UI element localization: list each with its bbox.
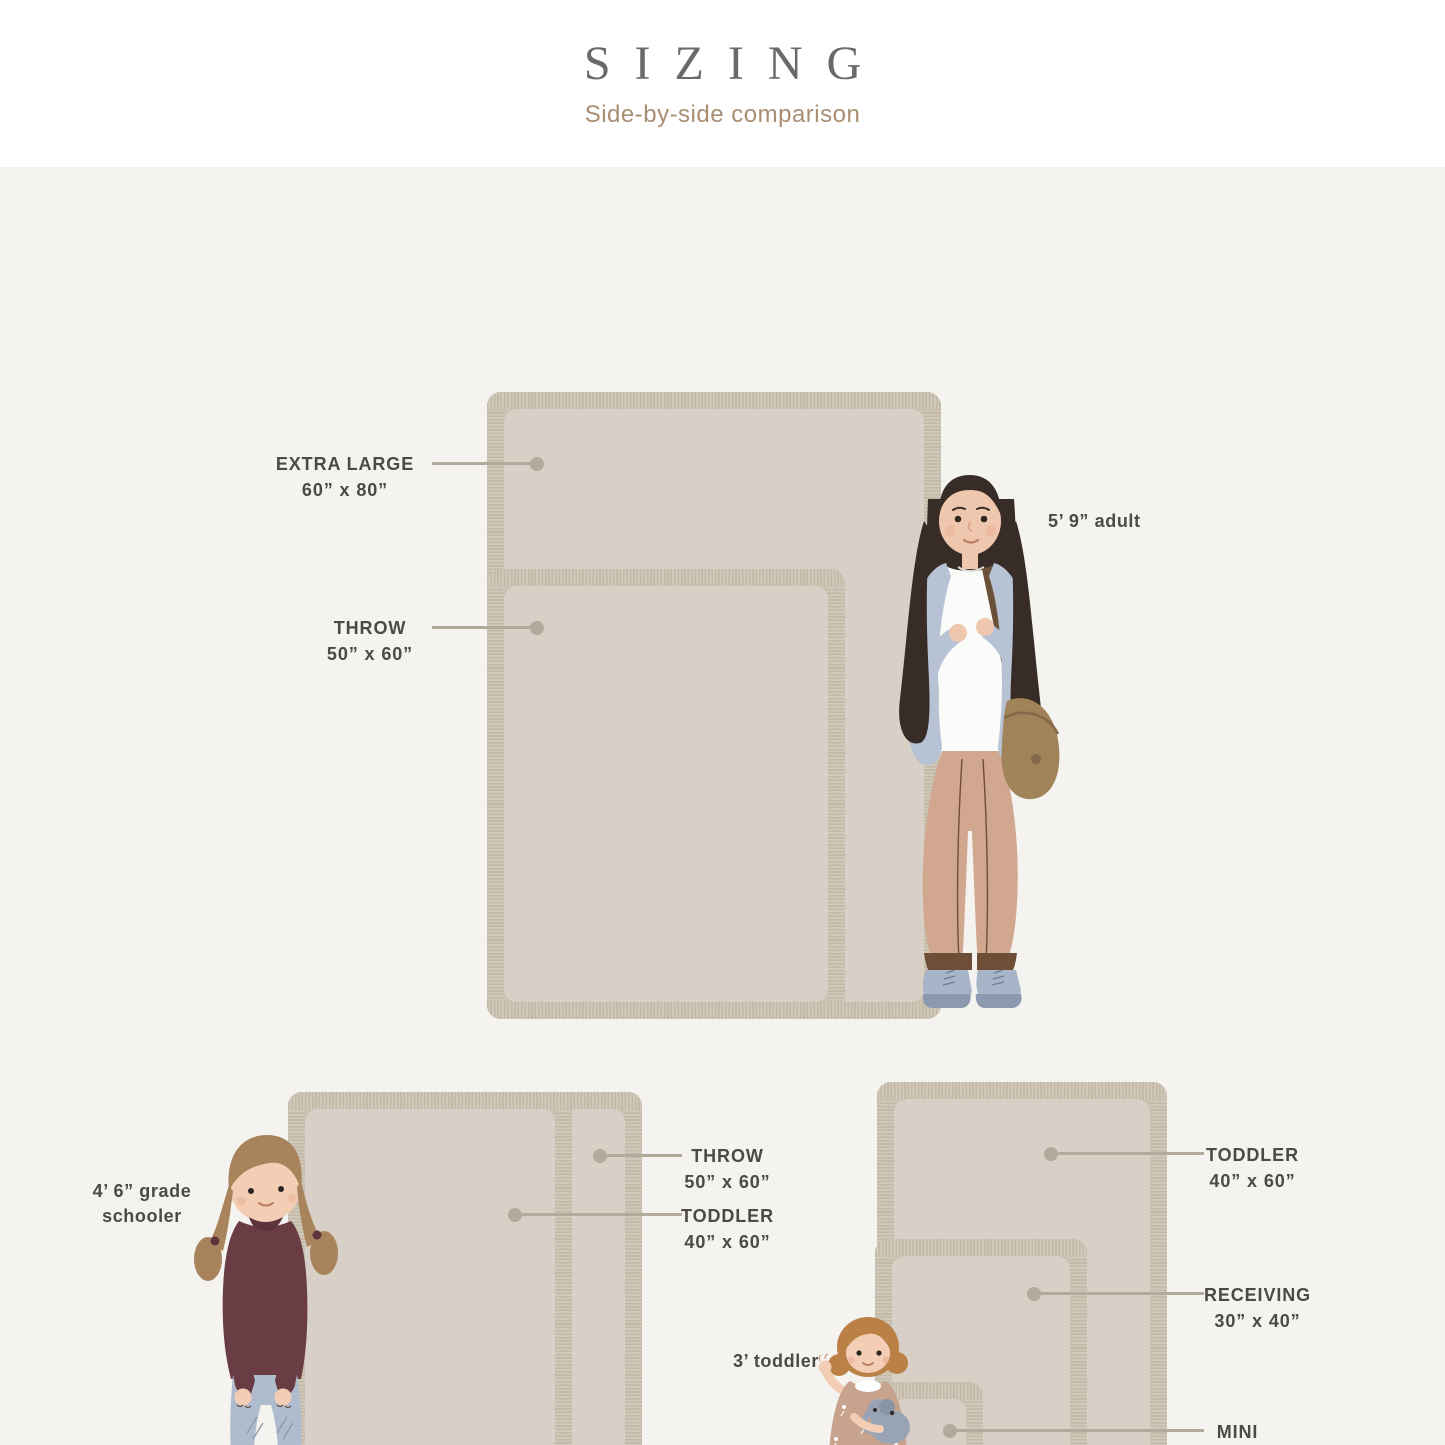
- page-subtitle: Side-by-side comparison: [0, 101, 1445, 129]
- blanket-fringe: [554, 1092, 572, 1445]
- blanket-fringe: [487, 569, 505, 1019]
- leader-extra-large: [432, 462, 537, 465]
- diagram-area: EXTRA LARGE 60” x 80” THROW 50” x 60” 5’…: [0, 167, 1445, 1445]
- sizing-comparison-chart: SIZING Side-by-side comparison: [0, 0, 1445, 1445]
- leader-dot: [593, 1149, 607, 1163]
- label-mini: MINI 15” x 20”: [1150, 1419, 1325, 1445]
- blanket-throw-top: [487, 569, 845, 1019]
- grade-schooler-illustration: [193, 1127, 338, 1445]
- label-receiving: RECEIVING 30” x 40”: [1170, 1282, 1345, 1334]
- blanket-fringe: [487, 569, 845, 587]
- label-toddler-right: TODDLER 40” x 60”: [1165, 1142, 1340, 1194]
- blanket-name: THROW: [270, 615, 470, 641]
- leader-dot: [508, 1208, 522, 1222]
- toddler-illustration: [806, 1307, 921, 1445]
- blanket-fringe: [877, 1082, 1167, 1100]
- label-extra-large: EXTRA LARGE 60” x 80”: [245, 451, 445, 503]
- blanket-fringe: [827, 569, 845, 1019]
- leader-dot: [530, 621, 544, 635]
- blanket-name: TODDLER: [1165, 1142, 1340, 1168]
- blanket-fringe: [288, 1092, 572, 1110]
- blanket-size: 60” x 80”: [245, 477, 445, 503]
- blanket-body: [305, 1109, 555, 1445]
- label-throw-bottom: THROW 50” x 60”: [640, 1143, 815, 1195]
- blanket-size: 30” x 40”: [1170, 1308, 1345, 1334]
- blanket-body: [504, 586, 828, 1002]
- blanket-fringe: [1149, 1082, 1167, 1445]
- blanket-fringe: [875, 1239, 1087, 1257]
- blanket-fringe: [1069, 1239, 1087, 1445]
- blanket-name: MINI: [1150, 1419, 1325, 1445]
- blanket-fringe: [487, 392, 941, 410]
- leader-dot: [1044, 1147, 1058, 1161]
- leader-dot: [1027, 1287, 1041, 1301]
- blanket-name: TODDLER: [640, 1203, 815, 1229]
- blanket-size: 50” x 60”: [270, 641, 470, 667]
- adult-woman-illustration: [866, 459, 1076, 1019]
- blanket-size: 50” x 60”: [640, 1169, 815, 1195]
- leader-dot: [530, 457, 544, 471]
- header: SIZING Side-by-side comparison: [0, 0, 1445, 167]
- blanket-name: THROW: [640, 1143, 815, 1169]
- blanket-size: 40” x 60”: [1165, 1168, 1340, 1194]
- label-throw-top: THROW 50” x 60”: [270, 615, 470, 667]
- blanket-fringe: [487, 1001, 845, 1019]
- page-title: SIZING: [0, 0, 1445, 91]
- blanket-size: 40” x 60”: [640, 1229, 815, 1255]
- label-grade-schooler: 4’ 6” grade schooler: [80, 1179, 204, 1229]
- label-toddler-left: TODDLER 40” x 60”: [640, 1203, 815, 1255]
- leader-dot: [943, 1424, 957, 1438]
- blanket-name: EXTRA LARGE: [245, 451, 445, 477]
- blanket-name: RECEIVING: [1170, 1282, 1345, 1308]
